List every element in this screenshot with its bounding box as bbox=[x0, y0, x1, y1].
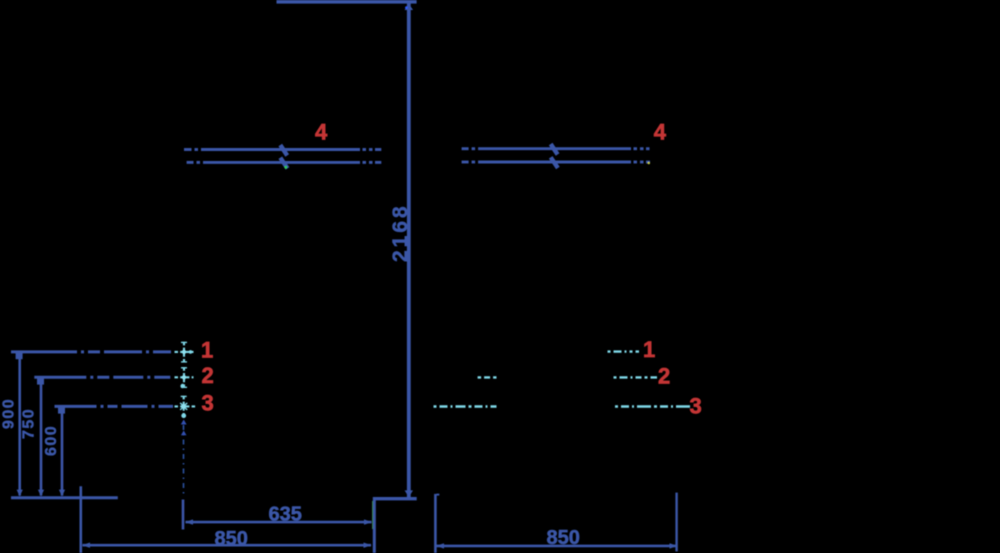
svg-text:2: 2 bbox=[202, 363, 214, 388]
svg-text:850: 850 bbox=[547, 527, 580, 549]
svg-text:2: 2 bbox=[658, 364, 670, 389]
svg-text:3: 3 bbox=[690, 394, 702, 419]
svg-text:4: 4 bbox=[315, 119, 328, 144]
svg-text:900: 900 bbox=[1, 398, 18, 429]
svg-text:600: 600 bbox=[43, 425, 60, 456]
svg-text:850: 850 bbox=[215, 528, 248, 550]
svg-text:4: 4 bbox=[654, 119, 667, 144]
svg-text:750: 750 bbox=[21, 408, 38, 439]
svg-text:3: 3 bbox=[202, 391, 214, 416]
svg-text:1: 1 bbox=[201, 337, 213, 362]
svg-text:2168: 2168 bbox=[389, 203, 412, 262]
svg-text:635: 635 bbox=[269, 504, 302, 526]
svg-text:1: 1 bbox=[643, 337, 655, 362]
